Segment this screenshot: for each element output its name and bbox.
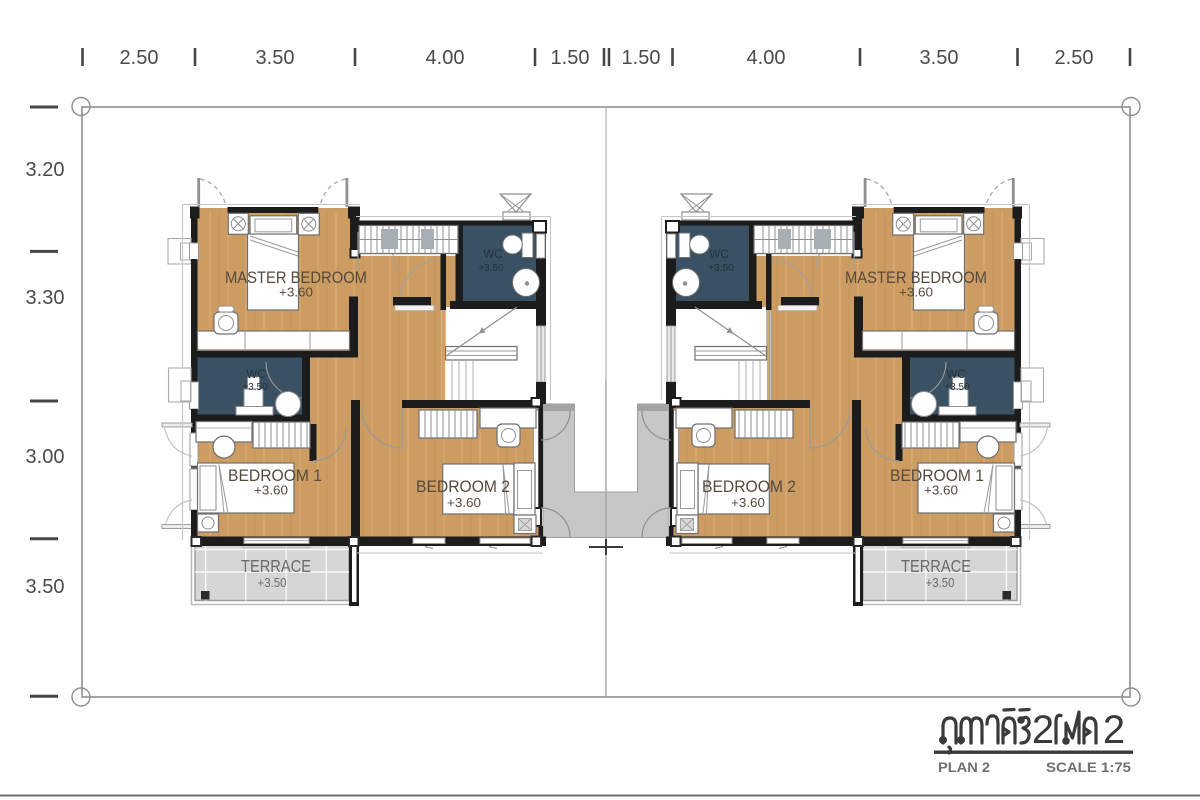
svg-text:4.00: 4.00 xyxy=(747,47,786,69)
svg-text:+3.60: +3.60 xyxy=(731,495,765,510)
svg-text:WC: WC xyxy=(483,249,502,261)
svg-text:+3.60: +3.60 xyxy=(447,495,481,510)
svg-text:3.00: 3.00 xyxy=(26,446,65,468)
svg-text:+3.50: +3.50 xyxy=(242,382,268,393)
svg-text:+3.50: +3.50 xyxy=(926,576,955,590)
svg-text:+3.50: +3.50 xyxy=(708,263,734,274)
svg-text:3.30: 3.30 xyxy=(26,287,65,309)
svg-text:WC: WC xyxy=(946,369,965,381)
svg-text:2: 2 xyxy=(1103,708,1125,752)
svg-text:BEDROOM 2: BEDROOM 2 xyxy=(702,477,796,496)
svg-text:+3.60: +3.60 xyxy=(924,483,958,498)
svg-text:1.50: 1.50 xyxy=(622,47,661,69)
svg-text:3.50: 3.50 xyxy=(920,47,959,69)
svg-text:SCALE 1:75: SCALE 1:75 xyxy=(1046,760,1132,775)
svg-text:+3.50: +3.50 xyxy=(944,382,970,393)
svg-text:+3.60: +3.60 xyxy=(254,483,288,498)
svg-text:+3.60: +3.60 xyxy=(899,285,933,300)
svg-text:4.00: 4.00 xyxy=(426,47,465,69)
svg-text:2: 2 xyxy=(1032,708,1054,752)
svg-text:WC: WC xyxy=(246,369,265,381)
svg-text:TERRACE: TERRACE xyxy=(901,556,971,576)
svg-text:+3.50: +3.50 xyxy=(478,263,504,274)
svg-text:PLAN 2: PLAN 2 xyxy=(938,760,990,775)
svg-text:TERRACE: TERRACE xyxy=(241,556,311,576)
svg-text:2.50: 2.50 xyxy=(120,47,159,69)
svg-text:+3.60: +3.60 xyxy=(279,285,313,300)
svg-text:2.50: 2.50 xyxy=(1055,47,1094,69)
svg-text:3.50: 3.50 xyxy=(26,576,65,598)
svg-text:BEDROOM 2: BEDROOM 2 xyxy=(416,477,510,496)
svg-text:3.50: 3.50 xyxy=(256,47,295,69)
svg-text:+3.50: +3.50 xyxy=(258,576,287,590)
svg-text:WC: WC xyxy=(709,249,728,261)
svg-text:3.20: 3.20 xyxy=(26,159,65,181)
svg-text:1.50: 1.50 xyxy=(551,47,590,69)
